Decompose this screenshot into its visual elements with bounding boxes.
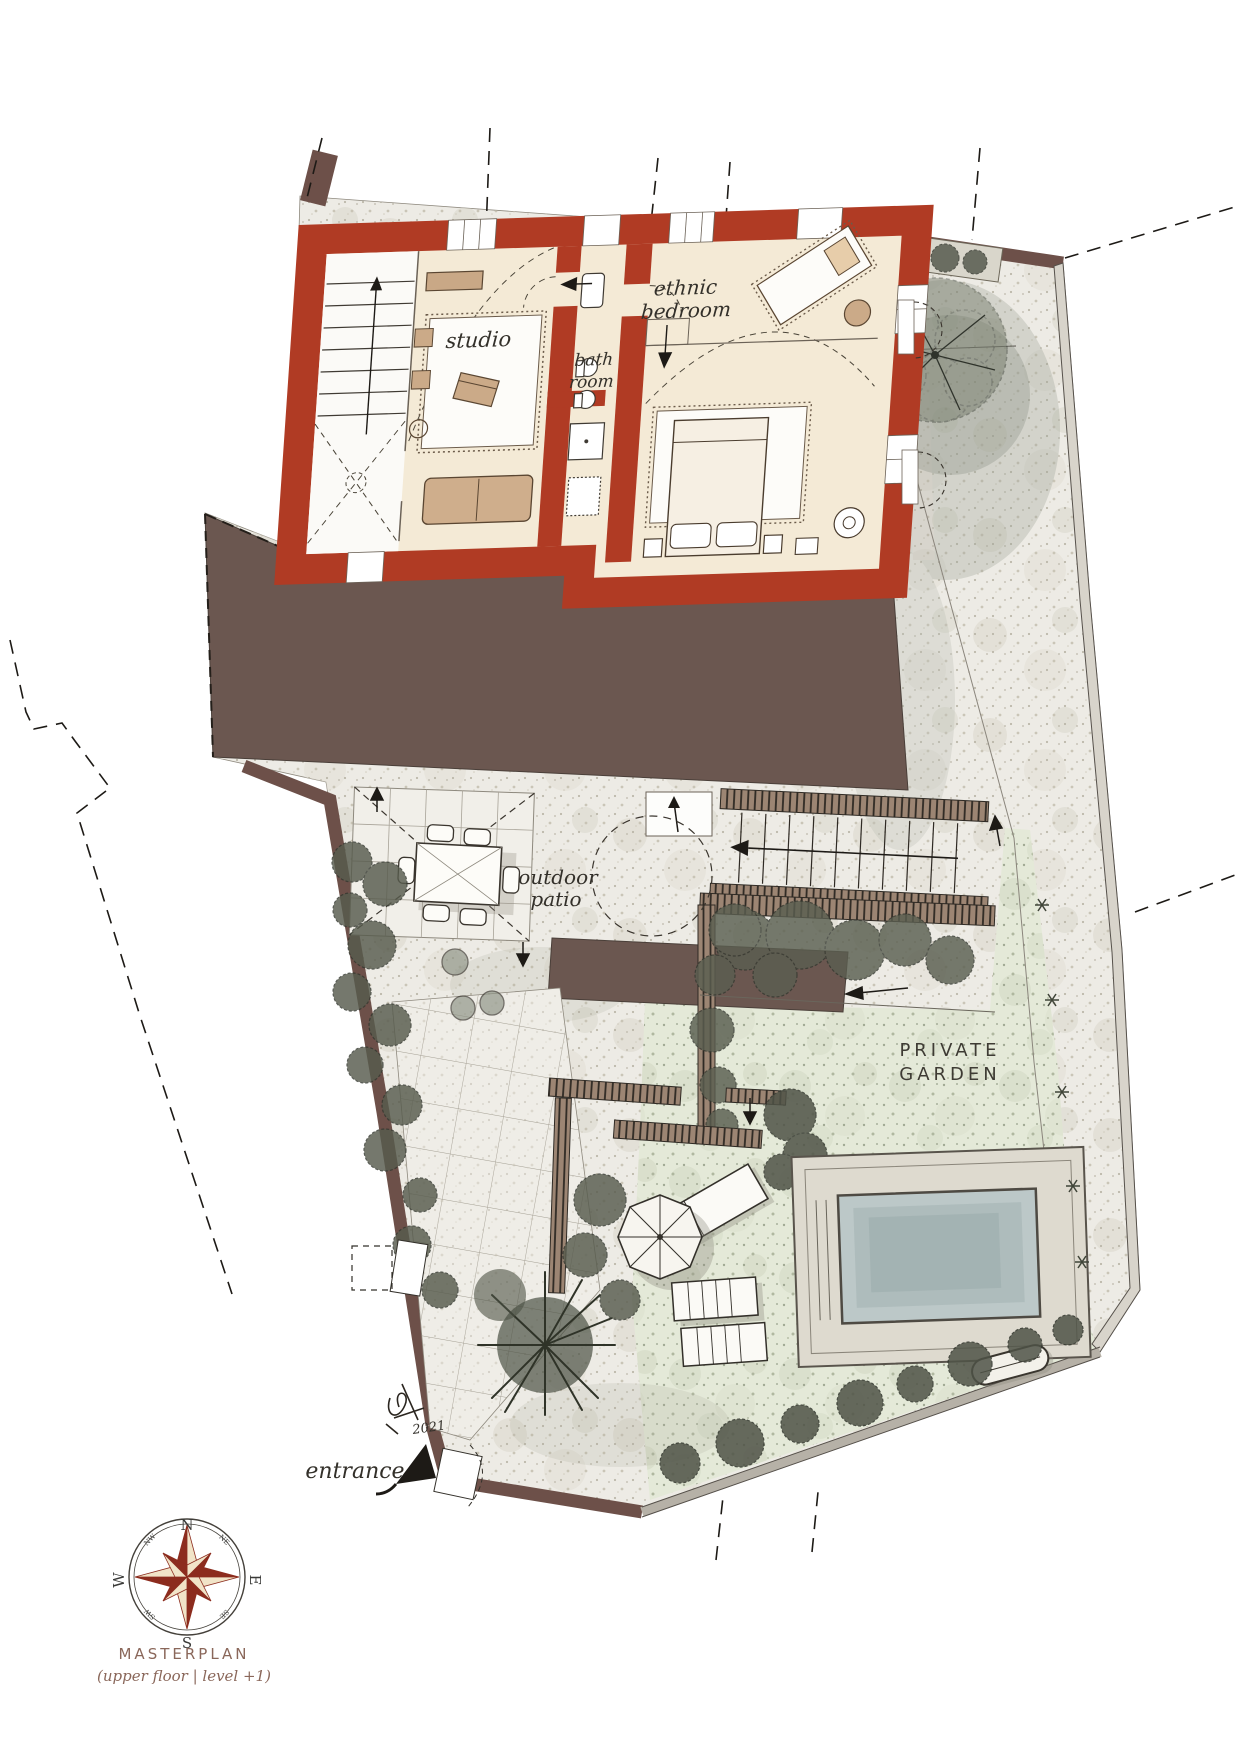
patio-label-line1: outdoor: [518, 865, 599, 889]
bedroom-label-line1: ethnic: [653, 275, 718, 301]
parasol: [618, 1195, 702, 1279]
masterplan-page: outdoor patio: [0, 0, 1240, 1753]
drawing-subtitle: (upper floor | level +1): [97, 1667, 271, 1685]
upper-floor-building: studio bath room ethnic bedroom: [288, 205, 934, 603]
garden-label-line2: GARDEN: [899, 1064, 1000, 1085]
studio-label: studio: [445, 326, 512, 353]
bathroom-label-line1: bath: [574, 350, 614, 371]
garden-label-line1: PRIVATE: [899, 1040, 1000, 1061]
swimming-pool: [791, 1147, 1090, 1367]
compass-north-label: N: [180, 1516, 193, 1534]
bathroom-label-line2: room: [568, 372, 614, 393]
stair-landing: [646, 792, 712, 836]
masterplan-drawing: outdoor patio: [0, 0, 1240, 1753]
patio-label-line2: patio: [530, 887, 581, 911]
compass-west-label: W: [110, 1572, 128, 1588]
entrance-gate: [434, 1448, 482, 1499]
bedroom-label-line2: bedroom: [640, 297, 732, 324]
compass-east-label: E: [246, 1575, 264, 1586]
entrance-label: entrance: [305, 1459, 404, 1484]
drawing-title: MASTERPLAN: [118, 1645, 249, 1663]
